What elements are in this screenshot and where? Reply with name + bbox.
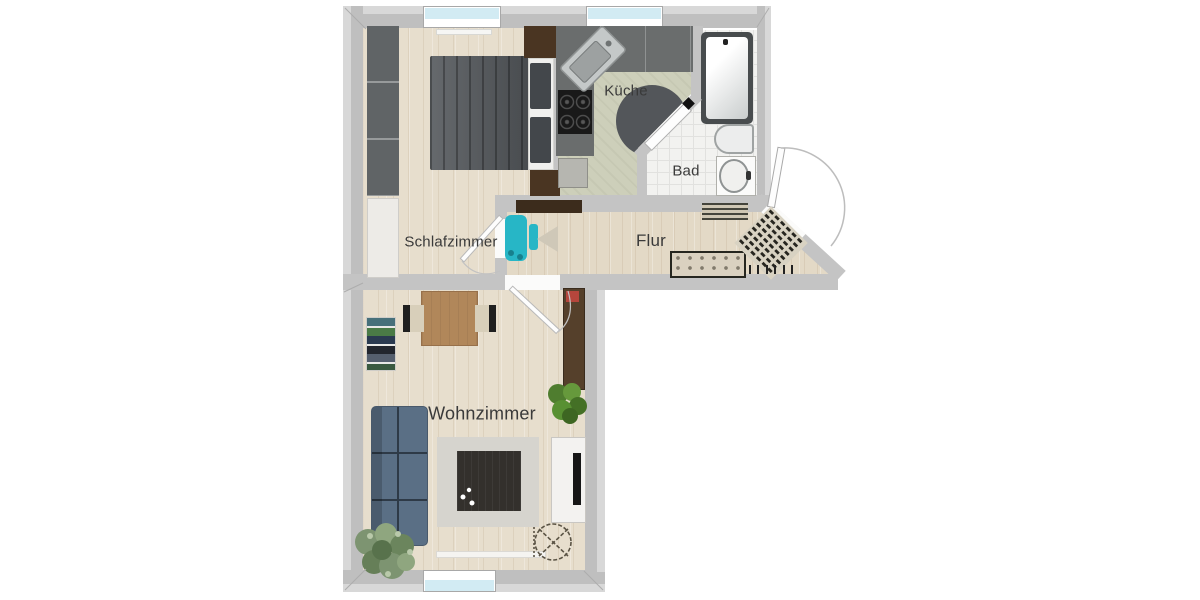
- stroller-handle: [529, 224, 538, 250]
- living-radiator: [436, 551, 546, 558]
- kitchen-window: [586, 6, 663, 28]
- bed-radiator: [436, 29, 492, 35]
- kitchen-counter-top: [556, 26, 693, 72]
- room-label-kitchen: Küche: [604, 83, 648, 100]
- stroller-wheel: [517, 254, 523, 260]
- wardrobe: [367, 26, 399, 196]
- toilet: [714, 124, 754, 154]
- tall-cabinet: [563, 288, 585, 390]
- floor-plan: Schlafzimmer Küche Bad Flur Wohnzimmer: [0, 0, 1200, 600]
- cooktop: [558, 90, 592, 134]
- chair-seat: [475, 305, 489, 332]
- kitchen-appliance: [558, 158, 588, 188]
- wall-bath-left-lower: [637, 148, 647, 198]
- entrance-door-swing-arc: [781, 148, 845, 246]
- double-bed: [430, 56, 530, 170]
- sofa-crease: [397, 407, 399, 545]
- hall-sideboard: [516, 200, 582, 213]
- bookshelf: [366, 317, 396, 371]
- bathtub-faucet: [723, 39, 728, 45]
- bathtub-basin: [706, 37, 748, 119]
- room-label-living-room: Wohnzimmer: [428, 404, 536, 425]
- dresser: [367, 198, 399, 278]
- chair-seat: [410, 305, 424, 332]
- bedroom-side-table: [530, 170, 560, 196]
- hall-bench: [670, 251, 746, 278]
- sofa: [371, 406, 428, 546]
- wall-bath-right: [757, 6, 771, 206]
- dining-table: [421, 291, 478, 346]
- bedroom-window: [423, 6, 501, 28]
- cabinet-red-object: [566, 291, 579, 302]
- pillow: [530, 63, 551, 109]
- pillow: [530, 117, 551, 163]
- window-glass: [425, 580, 494, 591]
- washbasin: [719, 159, 749, 193]
- wall-top: [343, 6, 771, 28]
- tv: [573, 453, 581, 505]
- room-label-bedroom: Schlafzimmer: [404, 234, 497, 251]
- coffee-table: [457, 451, 521, 511]
- room-label-bathroom: Bad: [672, 163, 699, 180]
- chair-back: [489, 305, 496, 332]
- window-glass: [425, 8, 499, 19]
- window-glass: [588, 8, 661, 19]
- wall-left: [343, 6, 363, 592]
- chair-back: [403, 305, 410, 332]
- stroller-wheel: [508, 250, 514, 256]
- washbasin-faucet: [746, 171, 751, 180]
- room-label-hallway: Flur: [636, 231, 666, 251]
- bath-doormat: [702, 203, 748, 220]
- bedside-cabinet: [524, 26, 556, 58]
- living-window: [423, 570, 496, 592]
- wall-living-right: [585, 288, 605, 572]
- living-door-threshold: [505, 275, 560, 290]
